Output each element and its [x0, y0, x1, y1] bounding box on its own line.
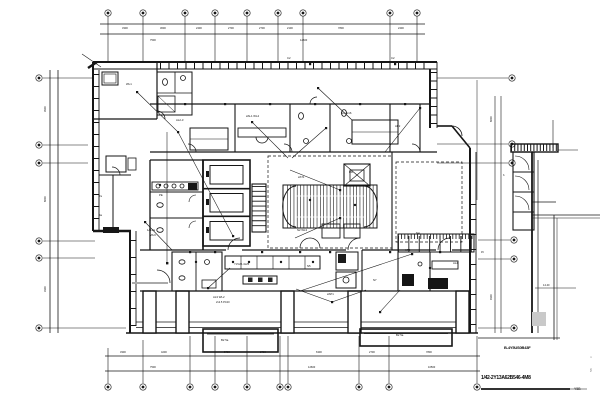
annotation-text: AL3 WL2 [213, 295, 225, 299]
central-hall [268, 156, 474, 252]
grid-bubbles-top [105, 10, 420, 16]
annotation-text: 2100 [287, 26, 293, 30]
annotation-text: C2 [391, 56, 395, 60]
annotation-text: N4 [416, 231, 420, 235]
annotation-text: 2x2.5 PC20 [216, 300, 230, 304]
annotation-text: 45 [481, 251, 484, 254]
annotation-text: N7 [373, 278, 377, 282]
annotation-layer: 3300360024002700270021007800240075001260… [43, 26, 593, 372]
annotation-text: 12600 [300, 38, 308, 42]
annotation-text: 10500 [428, 365, 436, 369]
annotation-text: 3300 [120, 350, 126, 354]
grid-bubbles-bottom [105, 384, 480, 390]
annotation-text: 2700 [260, 350, 266, 354]
annotation-text: 2700 [228, 26, 234, 30]
drawing-title-suffix: Y5B [574, 387, 581, 391]
annotation-text: N5 [307, 264, 311, 268]
annotation-text: 2AL1 WL4 [246, 114, 260, 118]
grid-bubbles-left [36, 75, 42, 331]
right-section-detail [478, 120, 600, 340]
drawing-title: 1/42-2Y13A62B546-4M8 [481, 375, 531, 381]
annotation-text: C2 [287, 56, 291, 60]
annotation-text: 2400 [196, 26, 202, 30]
facade-piers [143, 291, 469, 333]
annotation-text: 7500 [150, 365, 156, 369]
annotation-text: 7500 [150, 38, 156, 42]
annotation-text: B2 5a [221, 338, 229, 342]
annotation-text: 5B [589, 368, 593, 372]
annotation-text: 3300 [122, 26, 128, 30]
wiring-lines [82, 54, 420, 312]
annotation-text: PE [159, 193, 163, 197]
annotation-text: 14.40 [543, 283, 550, 287]
annotation-text: 2700 [369, 350, 375, 354]
annotation-text: b [503, 173, 505, 177]
annotation-text: 6300 [316, 350, 322, 354]
gray-shaft [532, 312, 546, 326]
annotation-text: 6600 [43, 196, 47, 202]
equipment-room [344, 164, 370, 186]
annotation-text: B2 5a [396, 333, 404, 337]
annotation-text: 3900 [43, 106, 47, 112]
annotation-text: 4a [99, 213, 102, 217]
annotation-text: 2AP1 [327, 292, 334, 296]
annotation-text: 1AL2a [147, 228, 156, 232]
annotation-text: 12600 [308, 365, 316, 369]
annotation-text: N3 2x16 [341, 111, 352, 115]
annotation-text: 2AT1 [298, 175, 305, 179]
drawing-sheet: 3300360024002700270021007800240075001260… [0, 0, 600, 400]
annotation-text: 5700 [224, 350, 230, 354]
annotation-text: C [589, 356, 593, 358]
annotation-text: 2400 [398, 26, 404, 30]
annotation-text: AL4 [453, 261, 458, 265]
annotation-text: AP3 [405, 248, 411, 252]
annotation-text: RD [349, 170, 353, 174]
annotation-text: N2 WL3 [297, 228, 308, 232]
annotation-text: WL1 [126, 82, 132, 86]
annotation-text: 2700 [259, 26, 265, 30]
annotation-text: YJV22-4x25 [234, 262, 250, 266]
floorplan-svg: 3300360024002700270021007800240075001260… [0, 0, 600, 400]
elevator-core [203, 160, 266, 246]
annotation-text: 3600 [160, 26, 166, 30]
interior-walls [93, 62, 470, 291]
annotation-text: 9300 [489, 294, 493, 300]
annotation-text: 7a [99, 194, 102, 198]
annotation-text: 7800 [338, 26, 344, 30]
annotation-text: WL6 [150, 233, 156, 237]
right-detail-caption: B-4Y5US0B43F [504, 345, 531, 350]
annotation-text: AL2-3 [176, 118, 184, 122]
annotation-text: 7800 [426, 350, 432, 354]
annotation-text: 4200 [161, 350, 167, 354]
kitchen-counter [225, 256, 320, 284]
annotation-text: AP2 [395, 124, 401, 128]
annotation-text: 6600 [489, 116, 493, 122]
annotation-text: 3300 [43, 286, 47, 292]
